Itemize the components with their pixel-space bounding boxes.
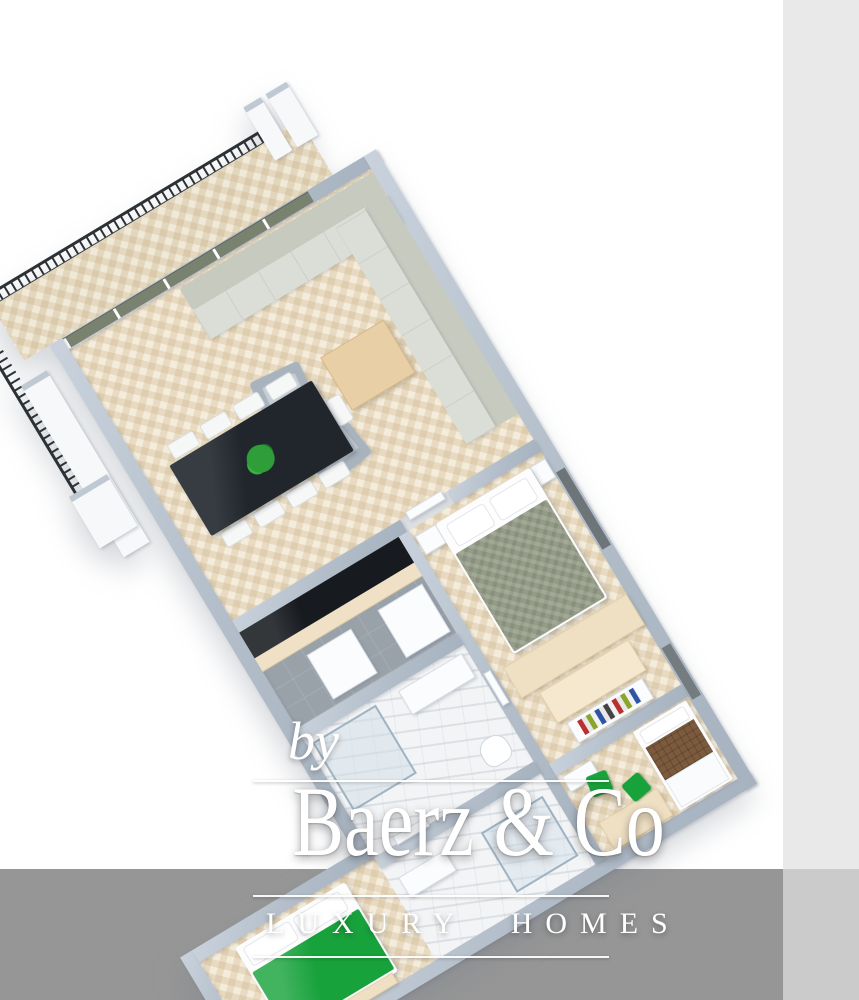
watermark-divider-bottom (253, 956, 609, 958)
watermark-byline: by (288, 714, 339, 768)
right-gray-strip (783, 0, 859, 869)
corner-gray-band (783, 869, 859, 1000)
screenshot-root: by Baerz & Co LUXURY HOMES (0, 0, 859, 1000)
watermark-tagline: LUXURY HOMES (253, 907, 609, 940)
watermark-divider-middle (253, 895, 609, 897)
watermark-brand: Baerz & Co (292, 769, 570, 875)
